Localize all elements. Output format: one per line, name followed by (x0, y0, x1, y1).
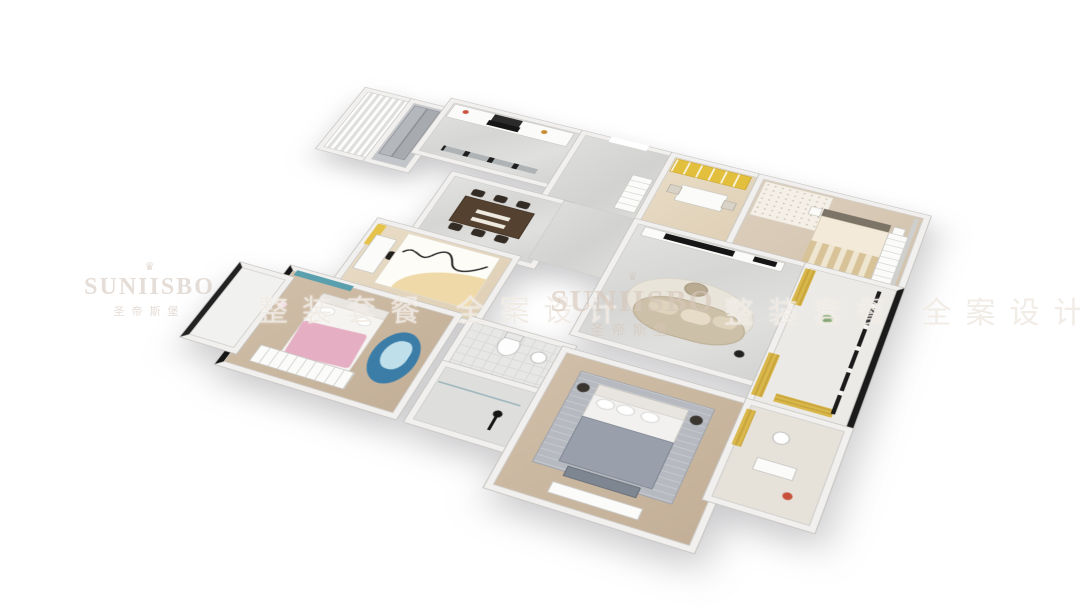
entrance-opening (609, 137, 650, 151)
slogan-watermark-right: 整装套餐 全案设计 (724, 288, 1080, 332)
shower-glass (438, 381, 521, 407)
wave-shape (374, 338, 416, 373)
brand-watermark-left: ♛ SUNIISBO 圣帝斯堡 (82, 262, 217, 319)
table-setting (470, 205, 513, 229)
towel-shelf (752, 457, 798, 481)
decor-dot (781, 491, 794, 501)
floor-lamp-icon (733, 349, 746, 359)
brand-logo-text: SUNIISBO (82, 275, 217, 299)
washbasin-icon (528, 350, 550, 365)
kitchen-glass-door (441, 145, 539, 174)
brand-logo-chinese: 圣帝斯堡 (82, 303, 217, 319)
washbasin-icon (770, 430, 792, 447)
crown-icon: ♛ (545, 272, 720, 283)
study-chair (720, 200, 737, 211)
brand-logo-text: SUNIISBO (545, 285, 720, 316)
crown-icon: ♛ (82, 262, 217, 273)
render-canvas: ♛ SUNIISBO 圣帝斯堡 整装套餐 全案设计 ♛ SUNIISBO 圣帝斯… (0, 0, 1080, 608)
brand-watermark-center: ♛ SUNIISBO 圣帝斯堡 (545, 272, 720, 340)
brand-logo-chinese: 圣帝斯堡 (545, 320, 720, 340)
